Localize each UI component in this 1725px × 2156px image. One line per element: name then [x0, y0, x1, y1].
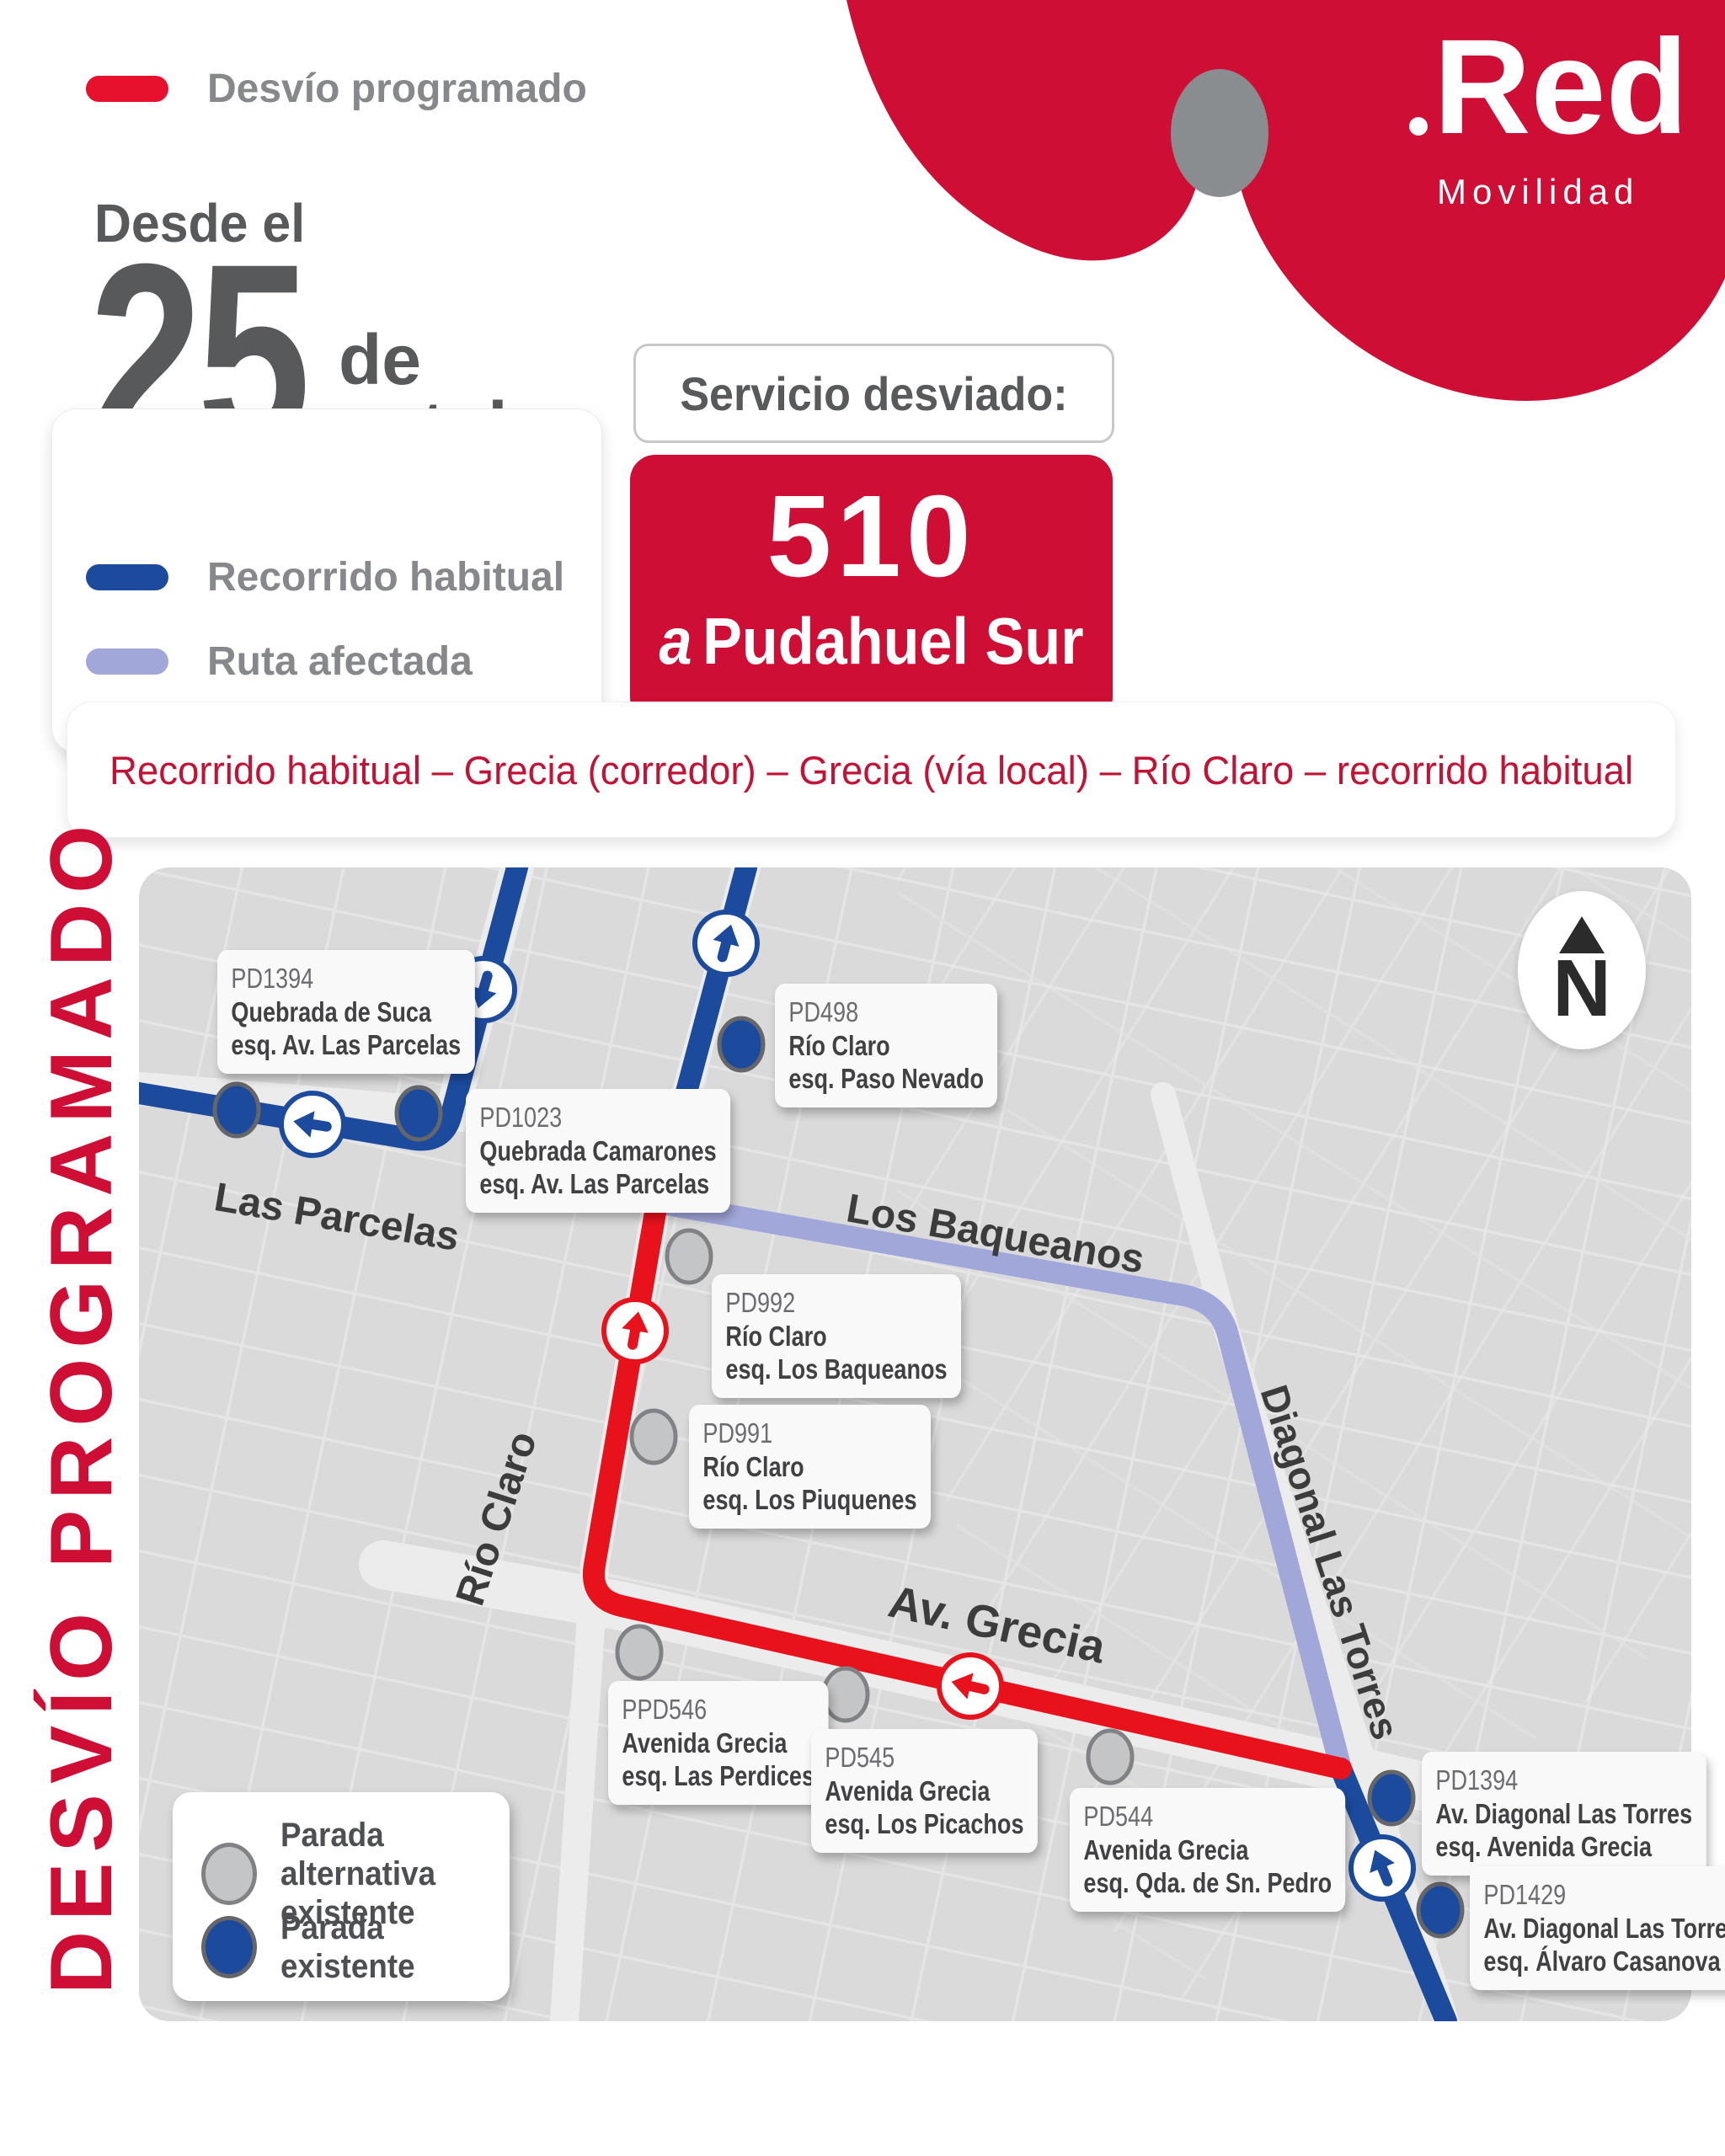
arrow-north-icon [695, 912, 757, 974]
stop-marker-pd992 [667, 1230, 711, 1283]
stop-name: Río Claro [725, 1320, 947, 1353]
stop-cross: esq. Av. Las Parcelas [479, 1167, 716, 1201]
arrow-west-red-icon [939, 1655, 1001, 1717]
desvio-programado-banner: DESVÍO PROGRAMADO [32, 815, 132, 1994]
stop-marker-pd544 [1088, 1731, 1132, 1783]
stop-callout-pd1023: PD1023 Quebrada Camarones esq. Av. Las P… [466, 1089, 730, 1213]
logo-dot-icon [1409, 117, 1428, 136]
legend-label-afectada: Ruta afectada [207, 638, 473, 685]
gray-dot-accent [1171, 69, 1268, 197]
stop-cross: esq. Álvaro Casanova [1483, 1945, 1725, 1978]
service-destination: aPudahuel Sur [654, 603, 1089, 680]
stop-marker-pd545 [824, 1668, 868, 1721]
arrow-north-red-icon [604, 1299, 666, 1362]
stop-cross: esq. Avenida Grecia [1435, 1830, 1692, 1864]
stop-callout-pd991: PD991 Río Claro esq. Los Piuquenes [689, 1405, 931, 1529]
north-compass: N [1518, 891, 1646, 1049]
legend-label-desvio: Desvío programado [207, 66, 587, 112]
service-number: 510 [630, 478, 1113, 595]
stop-marker-pd1394-parcelas [215, 1084, 259, 1136]
stop-code: PD498 [788, 995, 984, 1029]
stop-callout-pd545: PD545 Avenida Grecia esq. Los Picachos [811, 1729, 1038, 1853]
stop-cross: esq. Las Perdices [622, 1759, 814, 1793]
stop-name: Río Claro [702, 1450, 916, 1484]
legend-swatch-habitual [86, 564, 168, 590]
legend-alt-stop-icon [201, 1843, 257, 1905]
stop-name: Quebrada Camarones [479, 1134, 716, 1168]
diversion-notice-poster: Red Movilidad Desde el 25 de octubre Des… [0, 0, 1725, 2156]
stop-callout-pd1394-parcelas: PD1394 Quebrada de Suca esq. Av. Las Par… [217, 950, 475, 1074]
legend-existing-stop-icon [201, 1916, 257, 1978]
stop-code: PD545 [825, 1741, 1023, 1774]
arrow-northwest-icon [1351, 1837, 1413, 1899]
stop-code: PPD546 [622, 1693, 814, 1726]
stop-name: Río Claro [788, 1029, 984, 1063]
stop-callout-pd1429: PD1429 Av. Diagonal Las Torres esq. Álva… [1470, 1866, 1725, 1990]
stop-cross: esq. Los Piuquenes [702, 1483, 916, 1517]
stop-cross: esq. Los Picachos [825, 1807, 1023, 1841]
stop-code: PD992 [725, 1286, 947, 1320]
stop-marker-pd991 [632, 1411, 676, 1463]
stop-callout-pd544: PD544 Avenida Grecia esq. Qda. de Sn. Pe… [1070, 1788, 1346, 1912]
brand-sub: Movilidad [1437, 172, 1639, 211]
stop-marker-pd1429 [1418, 1884, 1462, 1936]
stop-code: PD1394 [231, 962, 461, 995]
legend-label-habitual: Recorrido habitual [207, 554, 564, 600]
stop-marker-pd1023 [397, 1087, 441, 1139]
stop-callout-ppd546: PPD546 Avenida Grecia esq. Las Perdices [608, 1681, 828, 1805]
stop-cross: esq. Los Baqueanos [725, 1353, 947, 1386]
stop-callout-pd992: PD992 Río Claro esq. Los Baqueanos [712, 1274, 961, 1398]
legend-existing-stop-label: Parada existente [280, 1908, 483, 1986]
stop-cross: esq. Paso Nevado [788, 1062, 984, 1096]
stop-name: Av. Diagonal Las Torres [1483, 1912, 1725, 1945]
stop-name: Avenida Grecia [825, 1774, 1023, 1808]
route-summary-text: Recorrido habitual – Grecia (corredor) –… [109, 747, 1633, 793]
date-de: de [339, 327, 598, 394]
service-diverted-box: Servicio desviado: [633, 344, 1114, 443]
stop-marker-pd1394-diagonal [1370, 1772, 1413, 1824]
stop-code: PD1023 [479, 1101, 716, 1134]
stop-code: PD1394 [1435, 1764, 1692, 1797]
service-badge: 510 aPudahuel Sur [630, 455, 1113, 723]
stop-name: Avenida Grecia [622, 1726, 814, 1760]
effective-date: Desde el 25 de octubre [94, 192, 316, 254]
brand-logo: Red [1434, 11, 1688, 162]
stop-code: PD991 [702, 1417, 916, 1450]
legend-swatch-afectada [86, 648, 168, 675]
service-diverted-label: Servicio desviado: [680, 366, 1067, 421]
stop-marker-ppd546 [617, 1626, 661, 1678]
stop-code: PD1429 [1483, 1878, 1725, 1912]
arrow-west-icon [281, 1093, 344, 1155]
route-summary-strip: Recorrido habitual – Grecia (corredor) –… [67, 702, 1676, 838]
stop-callout-pd1394-diagonal: PD1394 Av. Diagonal Las Torres esq. Aven… [1422, 1752, 1706, 1876]
stop-cross: esq. Av. Las Parcelas [231, 1028, 461, 1062]
stop-code: PD544 [1083, 1800, 1332, 1833]
stop-marker-pd498 [719, 1018, 763, 1070]
legend-swatch-desvio [86, 76, 168, 102]
stop-name: Avenida Grecia [1083, 1833, 1332, 1867]
stop-cross: esq. Qda. de Sn. Pedro [1083, 1866, 1332, 1900]
stop-callout-pd498: PD498 Río Claro esq. Paso Nevado [775, 984, 997, 1107]
stop-name: Av. Diagonal Las Torres [1435, 1797, 1692, 1831]
service-destination-name: Pudahuel Sur [702, 604, 1083, 678]
stop-legend-card: Parada alternativa existente Parada exis… [173, 1792, 510, 2001]
service-destination-prefix: a [659, 604, 692, 678]
stop-name: Quebrada de Suca [231, 995, 461, 1029]
north-letter: N [1518, 948, 1646, 1029]
